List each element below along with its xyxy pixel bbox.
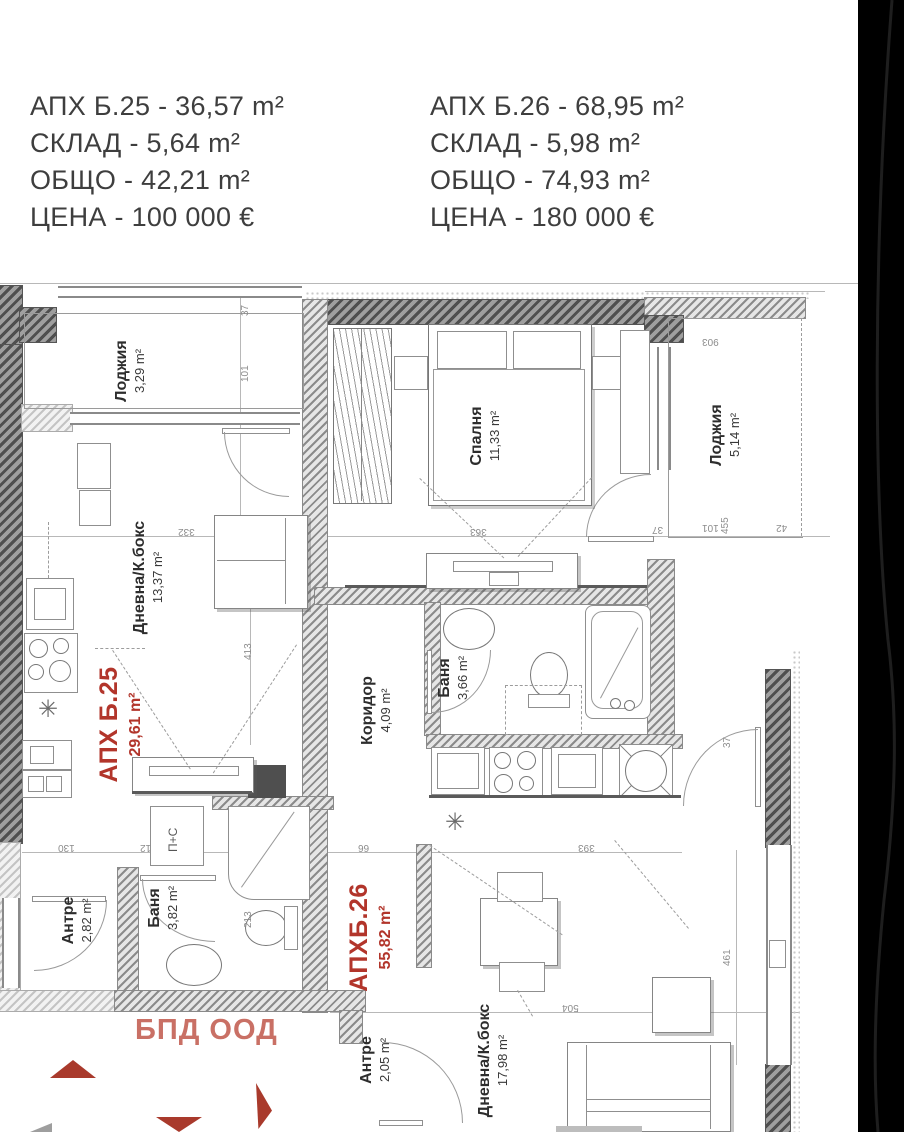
listing-line: СКЛАД - 5,98 m² <box>430 125 684 162</box>
fridge-inner <box>437 753 479 789</box>
wall-thin-top <box>58 286 302 298</box>
listing-line: ОБЩО - 74,93 m² <box>430 162 684 199</box>
shaft-dashed-box <box>505 685 582 735</box>
room-name: Лоджия <box>707 404 727 465</box>
faucet <box>610 698 621 709</box>
room-area: 2,82 m² <box>79 898 95 942</box>
cabinet-inner <box>46 776 62 792</box>
room-label-entry25: Антре 2,82 m² <box>55 873 99 968</box>
listing-apartment-b26: АПХ Б.26 - 68,95 m² СКЛАД - 5,98 m² ОБЩО… <box>430 88 684 236</box>
room-area: 3,29 m² <box>132 349 148 393</box>
listing-line: СКЛАД - 5,64 m² <box>30 125 284 162</box>
room-name: Спалня <box>467 406 487 465</box>
insulation-strip <box>792 650 800 1132</box>
wall-entry25-bath25 <box>118 868 138 992</box>
bathroom-sink <box>166 944 222 986</box>
room-name: Баня <box>145 888 165 927</box>
wall-party <box>303 300 327 1012</box>
shower-cabin <box>228 806 310 900</box>
dishwasher-inner <box>558 754 596 788</box>
door-arc-bedroom <box>586 474 651 537</box>
sofa-armrest-line <box>586 1045 587 1129</box>
room-name: Лоджия <box>112 340 132 401</box>
washer-label: П+С <box>166 828 180 852</box>
room-name: Дневна/К.бокс <box>130 521 150 634</box>
fridge-projection <box>48 522 49 578</box>
window-loggia25 <box>70 412 300 425</box>
burner <box>53 638 69 654</box>
black-side-panel <box>858 0 904 1132</box>
wall-bedroom-top <box>310 300 670 324</box>
dimension-text: 213 <box>243 911 254 928</box>
toilet-tank <box>284 906 298 950</box>
dimension-text: 37 <box>652 524 663 535</box>
window-left <box>2 898 20 988</box>
cabinet-inner <box>30 746 54 764</box>
dimension-text: 101 <box>240 365 251 382</box>
faucet <box>624 700 635 711</box>
room-name: Коридор <box>358 676 378 745</box>
dimension-text: 130 <box>58 842 75 853</box>
room-area: 17,98 m² <box>495 1035 511 1086</box>
burner <box>517 751 536 770</box>
compass-triangle-up <box>50 1060 96 1078</box>
room-label-bedroom: Спалня 11,33 m² <box>464 397 506 475</box>
room-area: 13,37 m² <box>150 552 166 603</box>
projection-dashed-line <box>614 840 689 929</box>
wall <box>0 286 22 348</box>
nightstand <box>394 356 428 390</box>
sofa-cushion-line <box>586 1099 710 1100</box>
room-label-bath26: Баня 3,66 m² <box>431 642 475 714</box>
wardrobe-divider <box>361 329 362 501</box>
dimension-text: 903 <box>702 336 719 347</box>
dimension-line <box>0 283 858 284</box>
apartment-label-b25: АПХ Б.25 29,61 m² <box>88 657 152 792</box>
room-area: 4,09 m² <box>378 688 394 732</box>
cabinet-inner <box>28 776 44 792</box>
room-loggia-b25 <box>24 313 304 409</box>
developer-logo-text: БПД ООД <box>135 1014 278 1047</box>
cutoff-shape <box>30 1123 52 1132</box>
burner <box>28 664 44 680</box>
dimension-text: 37 <box>240 305 251 316</box>
listing-line: АПХ Б.25 - 36,57 m² <box>30 88 284 125</box>
dimension-text: 461 <box>722 949 733 966</box>
listing-line: АПХ Б.26 - 68,95 m² <box>430 88 684 125</box>
bed <box>428 324 592 506</box>
room-area: 5,14 m² <box>727 413 743 457</box>
wall-bath26-right <box>648 560 674 748</box>
burner <box>49 660 71 682</box>
listing-line: ЦЕНА - 100 000 € <box>30 199 284 236</box>
room-area: 3,82 m² <box>165 886 181 930</box>
room-name: Дневна/К.бокс <box>475 1004 495 1117</box>
room-label-entry26: Антре 2,05 m² <box>352 1026 398 1094</box>
room-name: Антре <box>59 897 79 945</box>
blanket <box>433 369 585 501</box>
room-label-loggia26: Лоджия 5,14 m² <box>704 375 746 495</box>
dimension-text: 101 <box>702 522 719 533</box>
apartment-label-b26: АПХБ.26 55,82 m² <box>338 880 402 995</box>
shower-line <box>241 812 295 888</box>
burner <box>494 752 511 769</box>
burner <box>519 776 534 791</box>
dimension-text: 37 <box>722 737 733 748</box>
chair <box>499 962 545 992</box>
room-area: 11,33 m² <box>487 411 503 461</box>
kitchen-cabinet <box>77 443 111 489</box>
apartment-id: АПХБ.26 <box>344 883 375 992</box>
tv <box>149 766 239 776</box>
apartment-area: 29,61 m² <box>126 692 146 756</box>
sofa-b25 <box>214 515 308 609</box>
listing-line: ОБЩО - 42,21 m² <box>30 162 284 199</box>
listing-line: ЦЕНА - 180 000 € <box>430 199 684 236</box>
kitchen-cabinet <box>79 490 111 526</box>
room-label-corridor: Коридор 4,09 m² <box>354 633 398 788</box>
counter-edge <box>429 795 681 798</box>
burner <box>494 774 513 793</box>
bathtub-inner <box>591 611 643 709</box>
compass-triangle-down <box>156 1117 202 1132</box>
door-arc-loggia25 <box>224 432 289 497</box>
wardrobe <box>333 328 392 504</box>
listing-apartment-b25: АПХ Б.25 - 36,57 m² СКЛАД - 5,64 m² ОБЩО… <box>30 88 284 236</box>
sofa-back-line <box>285 518 286 604</box>
sofa-armrest-line <box>710 1045 711 1129</box>
burner <box>29 639 48 658</box>
dimension-text: 413 <box>243 643 254 660</box>
loggia26-glass-dashed <box>801 318 802 536</box>
wall-bottom <box>115 991 365 1011</box>
room-name: Баня <box>435 658 455 697</box>
sofa-b26 <box>567 1042 731 1132</box>
dining-table <box>480 898 558 966</box>
tv-base <box>489 572 519 586</box>
sofa-cushion-line <box>586 1111 710 1112</box>
side-table <box>652 977 711 1033</box>
apartment-id: АПХ Б.25 <box>94 666 125 782</box>
floor-plan-page: АПХ Б.25 - 36,57 m² СКЛАД - 5,64 m² ОБЩО… <box>0 0 904 1132</box>
compass-triangle-right <box>256 1083 272 1129</box>
wall <box>0 991 118 1011</box>
room-label-loggia25: Лоджия 3,29 m² <box>110 312 150 430</box>
dimension-text: 42 <box>776 522 787 533</box>
room-area: 3,66 m² <box>455 656 471 700</box>
cutoff-furniture <box>556 1126 642 1132</box>
dimension-text: 363 <box>470 526 487 537</box>
wall-exterior-right <box>766 1065 790 1132</box>
boiler-icon: ✳ <box>445 808 465 837</box>
window-mullion <box>769 940 786 968</box>
pillow <box>513 331 581 369</box>
room-area: 2,05 m² <box>377 1038 393 1082</box>
wall-exterior-left <box>0 345 22 843</box>
stove-b25 <box>24 633 78 693</box>
dimension-text: 66 <box>358 842 369 853</box>
sofa-cushion-line <box>217 560 285 561</box>
dimension-text: 332 <box>178 526 195 537</box>
dimension-line <box>736 850 737 1065</box>
door-arc-loggia26 <box>683 729 758 806</box>
bathtub <box>585 605 651 719</box>
apartment-area: 55,82 m² <box>376 905 396 969</box>
kitchen-sink-round <box>625 750 667 792</box>
room-name: Антре <box>357 1036 377 1084</box>
chair <box>497 872 543 902</box>
wall-exterior-right <box>766 670 790 847</box>
room-label-living25: Дневна/К.бокс 13,37 m² <box>126 505 170 650</box>
dimension-text: 504 <box>562 1002 579 1013</box>
wall <box>315 588 655 604</box>
stove-b26 <box>489 747 543 797</box>
radiator <box>620 330 650 474</box>
wall-loggia-top <box>645 298 805 318</box>
curve-decoration <box>858 0 904 1132</box>
boiler-icon: ✳ <box>38 695 58 724</box>
dresser-tv <box>426 553 578 589</box>
pillow <box>437 331 507 369</box>
dimension-text: 393 <box>578 842 595 853</box>
projection-dashed-line <box>213 644 297 773</box>
dimension-text: 12 <box>140 842 151 853</box>
oven-inner <box>34 588 66 620</box>
room-label-living26: Дневна/К.бокс 17,98 m² <box>468 993 518 1128</box>
tv <box>453 561 553 572</box>
room-label-bath25: Баня 3,82 m² <box>140 873 186 943</box>
dimension-text: 455 <box>720 517 731 534</box>
wall <box>417 845 431 967</box>
